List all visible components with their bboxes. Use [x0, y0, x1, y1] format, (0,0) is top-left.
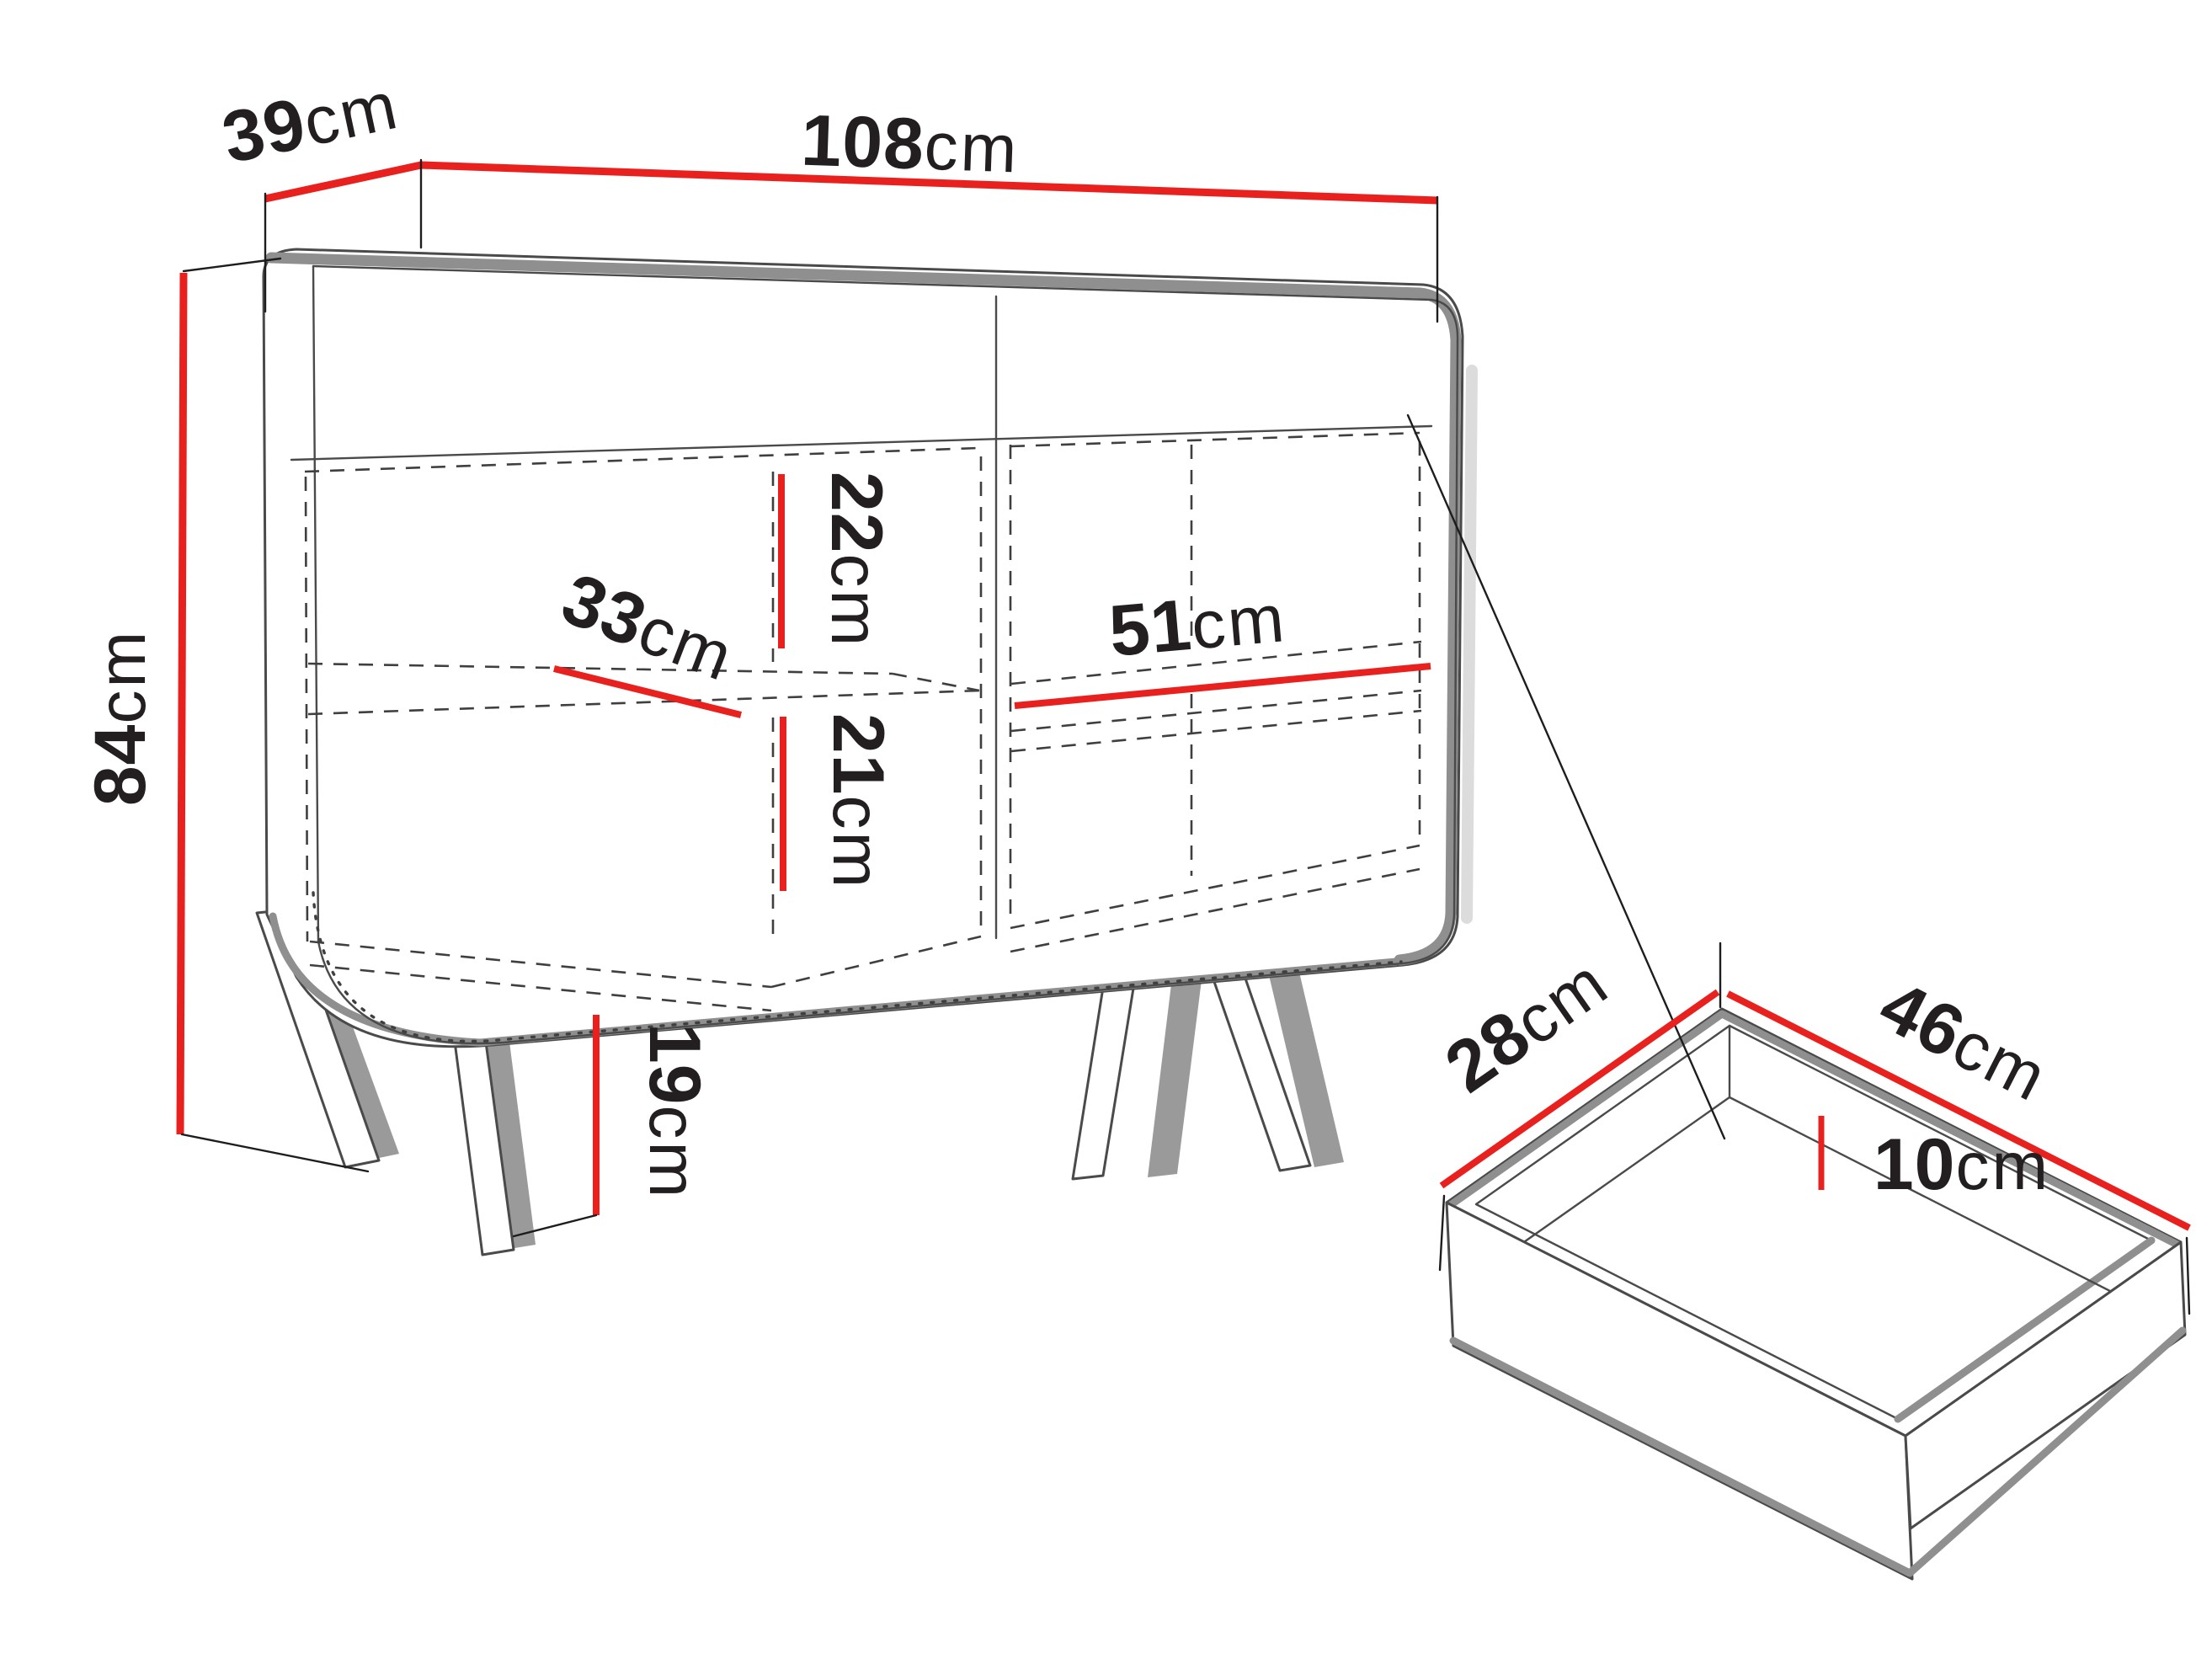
- diagram-canvas: 39cm 108cm 84cm 22cm 33cm 51cm 21cm 19cm…: [0, 0, 2212, 1659]
- dim-line-height-84: [180, 273, 184, 1134]
- dim-label-depth: 39cm: [216, 63, 406, 179]
- dim-label-leg-height: 19cm: [634, 1023, 715, 1200]
- dim-label-drawer-width: 46cm: [1868, 965, 2062, 1118]
- dim-label-lower-compartment: 21cm: [818, 713, 898, 890]
- cabinet-drop-shadow: [1467, 371, 1472, 918]
- dim-line-depth-39: [265, 165, 421, 199]
- dim-label-upper-compartment: 22cm: [816, 472, 897, 648]
- furniture-dimension-figure: 39cm 108cm 84cm 22cm 33cm 51cm 21cm 19cm…: [0, 0, 2212, 1659]
- drawer: [1447, 1009, 2185, 1579]
- tick-46-right: [2187, 1238, 2189, 1314]
- dim-label-width: 108cm: [800, 100, 1021, 189]
- tick-28-left: [1440, 1196, 1444, 1270]
- dim-label-drawer-height: 10cm: [1874, 1124, 2050, 1205]
- dim-label-height: 84cm: [80, 629, 161, 806]
